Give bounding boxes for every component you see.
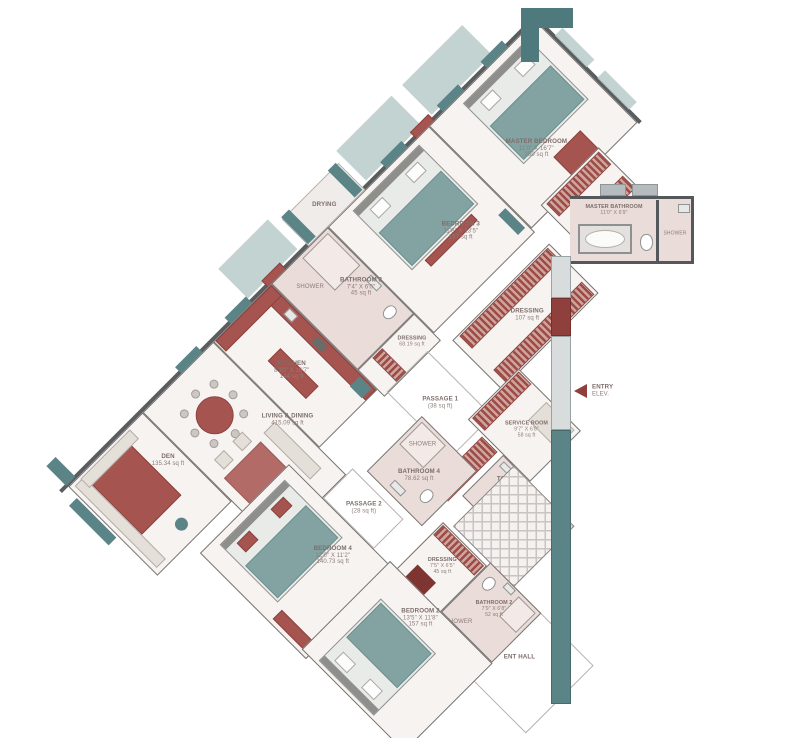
shower-label: SHOWER [296, 284, 324, 291]
passage2-label: PASSAGE 2 (28 sq ft) [346, 501, 382, 514]
room-area: 68.19 sq ft [397, 342, 426, 348]
wing-shower-label: SHOWER [663, 231, 686, 238]
room-area: 135.34 sq ft [152, 461, 185, 468]
ent-hall-label: ENT HALL [504, 655, 535, 662]
room-name: ENT HALL [504, 655, 535, 662]
bathtub-basin [585, 230, 625, 248]
room-name: PASSAGE 1 [422, 397, 458, 404]
room-area: (28 sq ft) [346, 508, 382, 515]
shower-label: SHOWER [663, 231, 686, 238]
entry-note: ELEV. [592, 391, 613, 398]
wing-vanity [600, 184, 626, 196]
band-segment [551, 256, 571, 298]
room-name: BEDROOM 3 [442, 222, 480, 229]
room-area: 415.09 sq ft [262, 420, 314, 427]
room-area: 144 sq ft [274, 374, 309, 381]
room-area: 157 sq ft [442, 235, 480, 242]
bedroom2-label: BEDROOM 2 13'5" X 11'8" 157 sq ft [401, 608, 439, 628]
room-name: BEDROOM 2 [401, 608, 439, 615]
dressing-master-label: DRESSING 107 sq ft [511, 308, 544, 321]
room-area: 107 sq ft [511, 315, 544, 322]
den-label: DEN 135.34 sq ft [152, 454, 185, 467]
room-area: 140.73 sq ft [314, 559, 352, 566]
room-area: 45 sq ft [428, 569, 457, 575]
room-name: DRESSING [511, 308, 544, 315]
band-segment [551, 336, 571, 430]
room-name: KITCHEN [274, 361, 309, 368]
room-name: LIVING & DINING [262, 414, 314, 421]
room-name: BEDROOM 4 [314, 546, 352, 553]
room-area: 157 sq ft [401, 622, 439, 629]
band-segment-teal [551, 430, 571, 704]
shower3-label: SHOWER [296, 284, 324, 291]
master-bedroom-label: MASTER BEDROOM 11'0" X 16'7" 250 sq ft [506, 139, 568, 159]
sink-fixture [678, 204, 690, 213]
dressing-small-label: DRESSING 68.19 sq ft [397, 337, 426, 349]
apartment-floor-plan: MASTER BEDROOM 11'0" X 16'7" 250 sq ft B… [0, 0, 800, 738]
toilet-fixture [640, 234, 653, 251]
bathroom2-label: BATHROOM 2 7'9" X 6'8" 52 sq ft [476, 601, 513, 618]
room-area: 250 sq ft [506, 152, 568, 159]
entry-label: ENTRY ELEV. [592, 384, 613, 397]
room-area: 45 sq ft [340, 291, 382, 298]
shower4-label: SHOWER [409, 442, 437, 449]
room-dims: 11'0" X 6'9" [585, 211, 642, 217]
room-area: 78.62 sq ft [398, 475, 440, 482]
room-name: MASTER BEDROOM [506, 139, 568, 146]
living-dining-label: LIVING & DINING 415.09 sq ft [262, 414, 314, 427]
shower-divider-wall [656, 200, 659, 262]
band-segment-red [551, 298, 571, 336]
dressing-bedroom4-label: DRESSING 7'5" X 6'5" 45 sq ft [428, 558, 457, 575]
room-name: PASSAGE 2 [346, 501, 382, 508]
master-bathroom-label: MASTER BATHROOM 11'0" X 6'9" [585, 205, 642, 217]
roof-column [521, 8, 573, 28]
room-area: 58 sq ft [505, 433, 548, 439]
kitchen-label: KITCHEN 8'10" X 16'7" 144 sq ft [274, 361, 309, 381]
bathroom3-label: BATHROOM 3 7'4" X 6'0" 45 sq ft [340, 277, 382, 297]
room-name: DRYING [312, 202, 336, 209]
shower-label: SHOWER [409, 442, 437, 449]
bathtub [578, 224, 632, 254]
room-dims: 12'0" X 11'2" [314, 553, 352, 560]
passage1-label: PASSAGE 1 (38 sq ft) [422, 397, 458, 410]
entry-arrow-icon [574, 384, 587, 398]
bathroom4-label: BATHROOM 4 78.62 sq ft [398, 469, 440, 482]
room-dims: 11'8" X 13'5" [442, 228, 480, 235]
room-area: 52 sq ft [476, 613, 513, 619]
bedroom3-label: BEDROOM 3 11'8" X 13'5" 157 sq ft [442, 222, 480, 242]
room-area: (38 sq ft) [422, 403, 458, 410]
drying-label: DRYING [312, 202, 336, 209]
wing-vanity [632, 184, 658, 196]
bedroom4-label: BEDROOM 4 12'0" X 11'2" 140.73 sq ft [314, 546, 352, 566]
service-room-label: SERVICE ROOM 9'7" X 6'8" 58 sq ft [505, 421, 548, 438]
entry-name: ENTRY [592, 384, 613, 391]
room-name: BATHROOM 4 [398, 469, 440, 476]
room-name: BATHROOM 3 [340, 277, 382, 284]
